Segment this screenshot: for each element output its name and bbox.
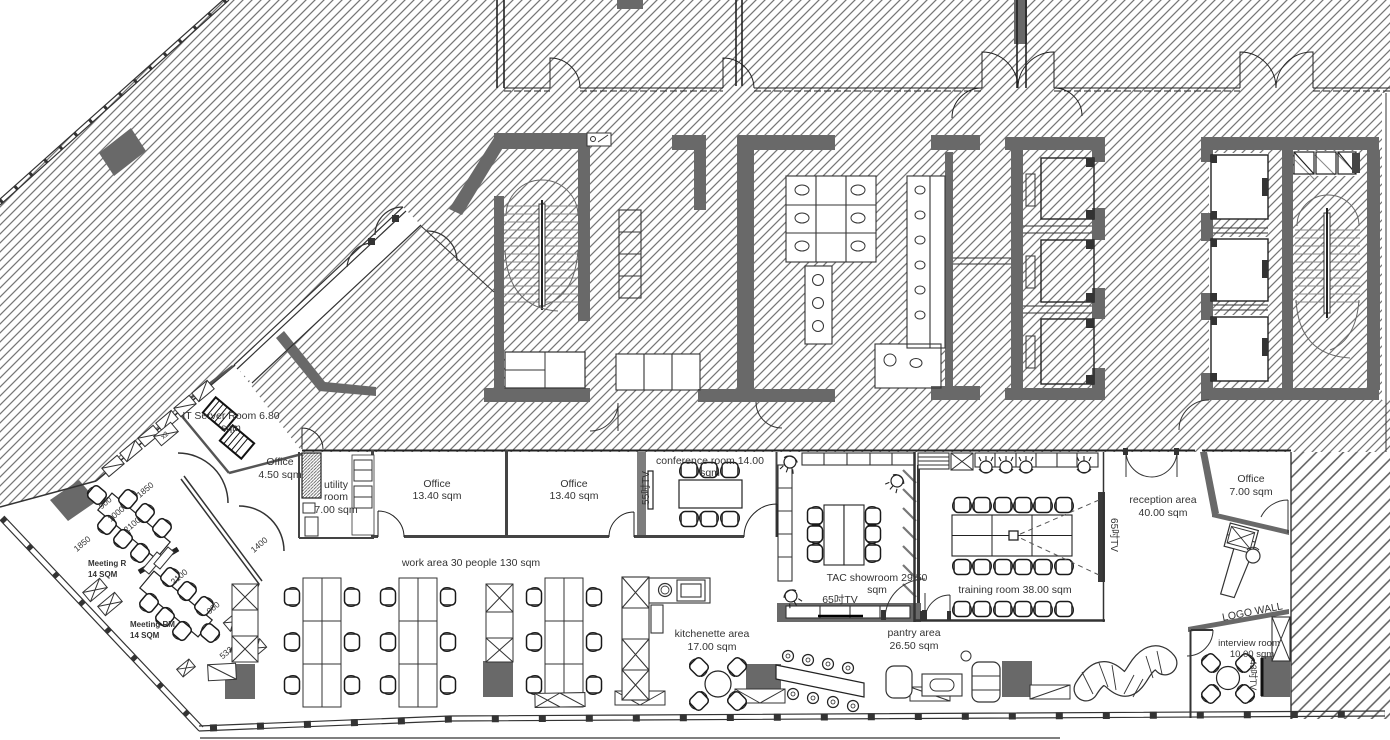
svg-text:65吋TV: 65吋TV xyxy=(1108,518,1120,552)
svg-text:13.40 sqm: 13.40 sqm xyxy=(549,490,598,502)
svg-text:Meeting RM: Meeting RM xyxy=(130,620,175,629)
svg-text:sqm: sqm xyxy=(700,467,720,479)
svg-text:43吋TV: 43吋TV xyxy=(1248,660,1258,691)
svg-text:TAC showroom 29.50: TAC showroom 29.50 xyxy=(827,572,928,584)
svg-text:kitchenette area: kitchenette area xyxy=(675,628,750,640)
svg-text:utility: utility xyxy=(324,479,349,491)
svg-text:4.50 sqm: 4.50 sqm xyxy=(258,469,301,481)
svg-text:26.50 sqm: 26.50 sqm xyxy=(889,640,938,652)
svg-text:conference room 14.00: conference room 14.00 xyxy=(656,455,764,467)
svg-text:Office: Office xyxy=(560,478,587,490)
svg-text:training room 38.00 sqm: training room 38.00 sqm xyxy=(958,584,1071,596)
svg-text:reception area: reception area xyxy=(1129,494,1196,506)
svg-text:17.00 sqm: 17.00 sqm xyxy=(687,641,736,653)
svg-text:10.00 sqm: 10.00 sqm xyxy=(1230,649,1274,660)
svg-text:pantry area: pantry area xyxy=(887,627,940,639)
svg-text:7.00 sqm: 7.00 sqm xyxy=(314,504,357,516)
svg-text:Office: Office xyxy=(266,456,293,468)
svg-text:Meeting R: Meeting R xyxy=(88,559,126,568)
svg-text:65吋TV: 65吋TV xyxy=(822,594,858,606)
svg-text:Office: Office xyxy=(423,478,450,490)
svg-text:14 SQM: 14 SQM xyxy=(130,631,160,640)
svg-text:13.40 sqm: 13.40 sqm xyxy=(412,490,461,502)
svg-text:14 SQM: 14 SQM xyxy=(88,570,118,579)
svg-text:sqm: sqm xyxy=(867,584,887,596)
svg-text:work area 30 people 130 sqm: work area 30 people 130 sqm xyxy=(401,557,541,569)
svg-text:sqm: sqm xyxy=(221,422,241,434)
svg-text:interview room: interview room xyxy=(1218,638,1280,649)
svg-text:7.00 sqm: 7.00 sqm xyxy=(1229,486,1272,498)
svg-text:Office: Office xyxy=(1237,473,1264,485)
svg-text:IT Server Room 6.80: IT Server Room 6.80 xyxy=(182,410,279,422)
svg-text:40.00 sqm: 40.00 sqm xyxy=(1138,507,1187,519)
svg-text:55吋TV: 55吋TV xyxy=(640,471,652,505)
svg-text:room: room xyxy=(324,491,348,503)
